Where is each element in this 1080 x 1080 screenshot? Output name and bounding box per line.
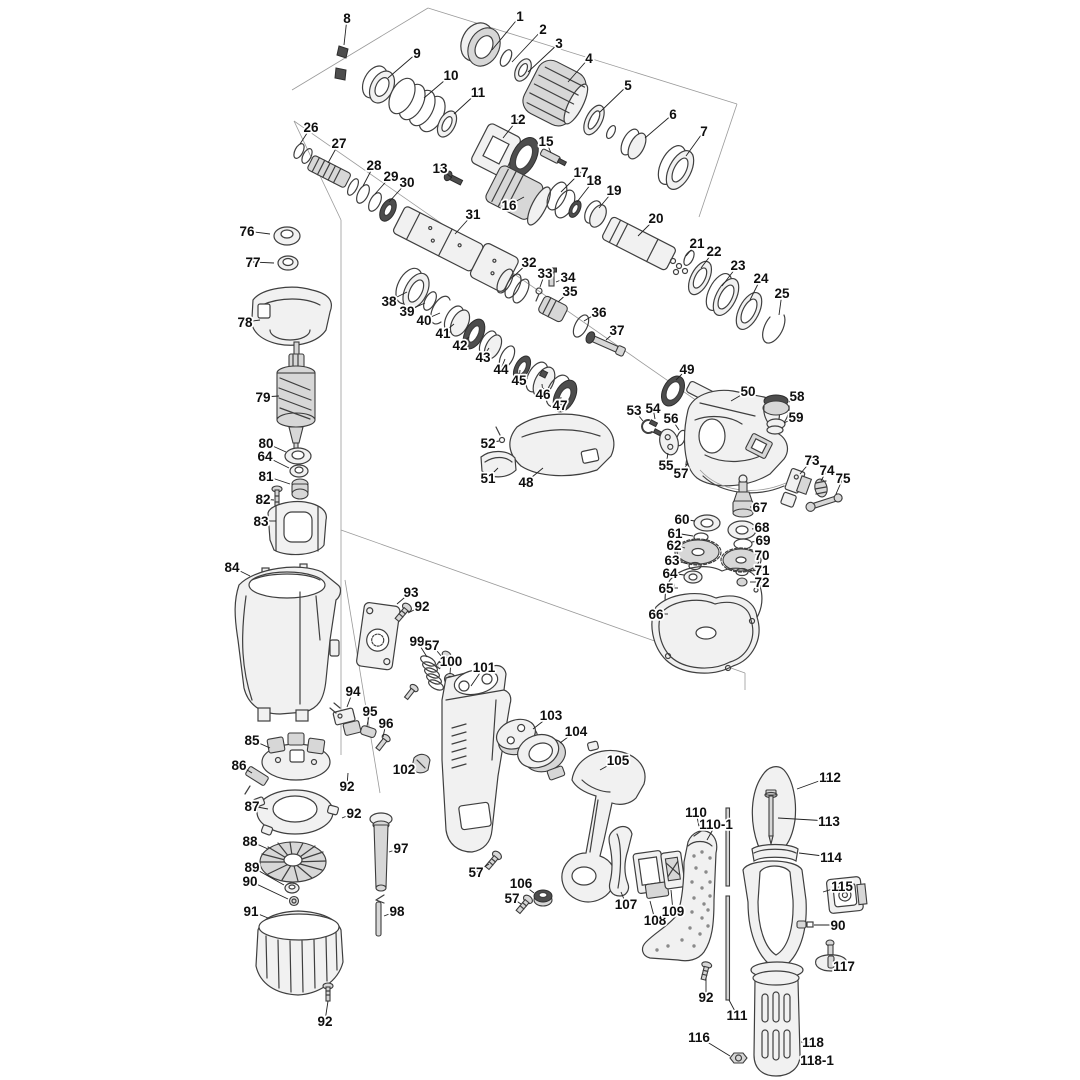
part-101-motor-housing-rear: [442, 665, 511, 852]
part-label-33-31: 33: [537, 266, 553, 281]
part-label-92-93: 92: [346, 806, 361, 821]
part-label-116-124: 116: [688, 1030, 710, 1045]
part-label-112-119: 112: [819, 770, 841, 785]
part-label-87-86: 87: [244, 799, 259, 814]
part-label-51-49: 51: [480, 471, 496, 486]
part-48-cover: [510, 414, 614, 476]
part-label-54-52: 54: [645, 401, 661, 416]
part-label-53-51: 53: [626, 403, 642, 418]
part-95-lever: [360, 725, 377, 738]
part-66-cover-plate: [652, 594, 759, 673]
part-label-19-17: 19: [606, 183, 621, 198]
part-label-73-71: 73: [804, 453, 820, 468]
part-118-grip: [753, 971, 800, 1076]
part-58-rubber-boot: [763, 395, 789, 429]
part-label-101-105: 101: [473, 660, 496, 675]
part-label-70-68: 70: [754, 548, 769, 563]
part-label-57-55: 57: [673, 466, 688, 481]
part-label-64-79: 64: [257, 449, 273, 464]
part-label-76-74: 76: [239, 224, 255, 239]
part-label-21-19: 21: [689, 236, 705, 251]
part-72-cup: [737, 578, 747, 586]
part-19-ring: [581, 198, 609, 230]
part-label-57-103: 57: [424, 638, 439, 653]
part-89-washer: [285, 883, 299, 893]
part-90-clip-b: [797, 921, 813, 928]
part-20-spindle: [601, 216, 687, 274]
part-label-97-100: 97: [393, 841, 408, 856]
part-label-84-83: 84: [224, 560, 240, 575]
part-label-118-126: 118: [802, 1035, 824, 1050]
part-105-handle-cover: [547, 741, 645, 902]
part-label-3-2: 3: [555, 36, 563, 51]
part-label-114-121: 114: [820, 850, 842, 865]
part-label-11-10: 11: [471, 85, 486, 100]
part-label-49-47: 49: [679, 362, 694, 377]
part-49-o-ring: [657, 372, 689, 410]
part-31-cylinder-barrel: [390, 202, 520, 293]
part-label-94-97: 94: [345, 684, 361, 699]
part-60-bearing: [694, 515, 720, 531]
part-3-washer: [511, 56, 534, 84]
part-label-56-54: 56: [663, 411, 679, 426]
exploded-parts-diagram-page: 1234567891011121315161718192021222324252…: [0, 0, 1080, 1080]
part-label-66-64: 66: [648, 607, 664, 622]
part-98-spring-pin: [376, 895, 384, 936]
part-label-59-57: 59: [788, 410, 803, 425]
part-label-7-6: 7: [700, 124, 708, 139]
part-112-dome: [752, 767, 795, 853]
part-label-29-27: 29: [383, 169, 398, 184]
part-label-65-63: 65: [658, 581, 674, 596]
part-57-screw-c: [483, 849, 503, 870]
part-111-rod: [726, 808, 730, 1000]
part-85-brush-holder: [262, 733, 330, 780]
part-label-42-40: 42: [452, 338, 467, 353]
part-label-75-73: 75: [835, 471, 851, 486]
part-label-25-23: 25: [774, 286, 790, 301]
part-label-47-45: 47: [552, 398, 567, 413]
part-label-88-87: 88: [242, 834, 258, 849]
part-label-113-120: 113: [818, 814, 840, 829]
part-label-81-80: 81: [258, 469, 274, 484]
part-label-95-98: 95: [362, 704, 378, 719]
part-label-20-18: 20: [648, 211, 663, 226]
part-label-1-0: 1: [516, 9, 524, 24]
part-label-64-62: 64: [662, 566, 678, 581]
part-116-nut: [730, 1053, 747, 1063]
part-62-gear: [675, 539, 721, 565]
part-27-splined-shaft: [307, 155, 361, 197]
part-label-69-67: 69: [755, 533, 770, 548]
part-label-2-1: 2: [539, 22, 547, 37]
part-88-fan: [260, 842, 326, 882]
part-label-109-115: 109: [662, 904, 685, 919]
part-18-ring: [566, 199, 583, 220]
part-79-armature: [277, 342, 315, 453]
part-label-90-123: 90: [830, 918, 845, 933]
part-label-106-110: 106: [510, 876, 533, 891]
part-label-41-39: 41: [435, 326, 451, 341]
part-2-ring: [498, 48, 514, 68]
part-81-insulator: [292, 479, 308, 499]
part-68-gear-hub: [728, 521, 756, 539]
part-label-98-101: 98: [389, 904, 405, 919]
part-64-bearing-b: [684, 571, 702, 583]
part-21-ring: [682, 249, 696, 267]
part-label-117-125: 117: [833, 959, 855, 974]
part-label-103-107: 103: [540, 708, 563, 723]
part-92-screw-d: [323, 983, 333, 1001]
part-label-111-118: 111: [726, 1008, 748, 1023]
part-label-24-22: 24: [753, 271, 769, 286]
part-label-57-112: 57: [504, 891, 519, 906]
part-label-43-41: 43: [475, 350, 491, 365]
part-87-baffle-ring: [253, 790, 339, 835]
part-7-guide-ring: [653, 141, 700, 193]
part-76-ball-bearing: [274, 227, 300, 245]
part-label-26-24: 26: [303, 120, 319, 135]
part-109-connector-block: [661, 851, 686, 889]
part-80-bearing: [285, 448, 311, 464]
part-label-46-44: 46: [535, 387, 551, 402]
part-label-37-35: 37: [609, 323, 624, 338]
part-label-110-1-117: 110-1: [699, 817, 733, 832]
part-label-72-70: 72: [754, 575, 769, 590]
part-label-92-92: 92: [339, 779, 354, 794]
part-label-6-5: 6: [669, 107, 677, 122]
part-5-ring-set: [580, 102, 618, 140]
part-label-28-26: 28: [366, 158, 382, 173]
part-label-74-72: 74: [819, 463, 835, 478]
part-label-92-95: 92: [698, 990, 713, 1005]
part-label-55-53: 55: [658, 458, 674, 473]
part-label-118-1-127: 118-1: [800, 1053, 834, 1068]
part-6-ring: [617, 126, 649, 161]
part-40-snap-ring: [431, 296, 450, 324]
part-label-38-36: 38: [381, 294, 397, 309]
part-label-78-76: 78: [237, 315, 253, 330]
part-label-44-42: 44: [493, 362, 509, 377]
part-label-4-3: 4: [585, 51, 593, 66]
part-90-nut-a: [290, 897, 299, 906]
part-52-pin: [496, 427, 505, 443]
part-77-ring: [278, 256, 298, 270]
part-label-92-94: 92: [317, 1014, 332, 1029]
part-114-clamp-band: [752, 845, 798, 862]
part-label-89-88: 89: [244, 860, 259, 875]
part-label-79-77: 79: [255, 390, 270, 405]
part-label-67-65: 67: [752, 500, 767, 515]
part-label-12-11: 12: [510, 112, 525, 127]
part-label-57-111: 57: [468, 865, 483, 880]
part-label-27-25: 27: [331, 136, 346, 151]
part-label-31-29: 31: [465, 207, 481, 222]
part-93-guard-plate: [356, 602, 401, 670]
part-label-34-32: 34: [560, 270, 576, 285]
part-label-58-56: 58: [789, 389, 805, 404]
part-label-92-91: 92: [414, 599, 429, 614]
part-label-50-48: 50: [740, 384, 755, 399]
part-label-32-30: 32: [521, 255, 536, 270]
exploded-parts-diagram: 1234567891011121315161718192021222324252…: [0, 0, 1080, 1080]
part-57-screw-small: [403, 683, 420, 701]
side-handle-clamp-base: [743, 861, 806, 978]
part-label-93-96: 93: [403, 585, 419, 600]
part-label-48-46: 48: [518, 475, 534, 490]
part-78-crank-cap: [252, 287, 332, 345]
part-label-99-102: 99: [409, 634, 424, 649]
part-label-102-106: 102: [393, 762, 416, 777]
part-label-100-104: 100: [440, 654, 463, 669]
part-label-10-9: 10: [443, 68, 458, 83]
part-label-83-82: 83: [253, 514, 269, 529]
part-15-pin: [540, 148, 567, 166]
part-25-snap-ring: [763, 315, 785, 343]
part-label-62-60: 62: [666, 538, 681, 553]
part-label-105-109: 105: [607, 753, 630, 768]
part-91-housing-cup: [256, 911, 343, 995]
part-30-gear-ring: [376, 196, 399, 224]
part-label-5-4: 5: [624, 78, 632, 93]
part-label-52-50: 52: [480, 436, 495, 451]
part-label-45-43: 45: [511, 373, 527, 388]
part-84-motor-housing: [235, 564, 340, 721]
part-label-36-34: 36: [591, 305, 607, 320]
part-label-85-84: 85: [244, 733, 260, 748]
part-label-13-12: 13: [432, 161, 448, 176]
part-label-91-90: 91: [243, 904, 259, 919]
part-label-104-108: 104: [565, 724, 588, 739]
part-label-35-33: 35: [562, 284, 578, 299]
part-label-107-113: 107: [615, 897, 638, 912]
part-106-grommet: [534, 890, 552, 906]
part-35-striker: [537, 295, 568, 323]
part-label-96-99: 96: [378, 716, 394, 731]
part-label-30-28: 30: [399, 175, 414, 190]
part-label-16-14: 16: [501, 198, 517, 213]
part-83-field-coil: [268, 502, 326, 555]
part-label-15-13: 15: [538, 134, 554, 149]
part-label-8-7: 8: [343, 11, 351, 26]
part-label-60-58: 60: [674, 512, 689, 527]
part-label-18-16: 18: [586, 173, 602, 188]
part-label-40-38: 40: [416, 313, 431, 328]
part-label-22-20: 22: [706, 244, 721, 259]
part-label-9-8: 9: [413, 46, 421, 61]
part-label-39-37: 39: [399, 304, 414, 319]
part-92-screw-e: [698, 961, 712, 981]
part-label-82-81: 82: [255, 492, 270, 507]
part-107-link-strip: [609, 827, 632, 896]
part-94-switch-bracket: [330, 703, 361, 736]
part-label-86-85: 86: [231, 758, 247, 773]
part-59-boot-flange: [767, 426, 783, 434]
part-97-push-rod: [370, 813, 392, 891]
part-label-77-75: 77: [245, 255, 260, 270]
part-label-23-21: 23: [730, 258, 746, 273]
part-label-115-122: 115: [831, 879, 853, 894]
part-label-90-89: 90: [242, 874, 257, 889]
part-96-screw: [374, 733, 392, 752]
part-1-chuck-cover: [455, 17, 507, 71]
part-64-bearing-a: [290, 465, 308, 477]
